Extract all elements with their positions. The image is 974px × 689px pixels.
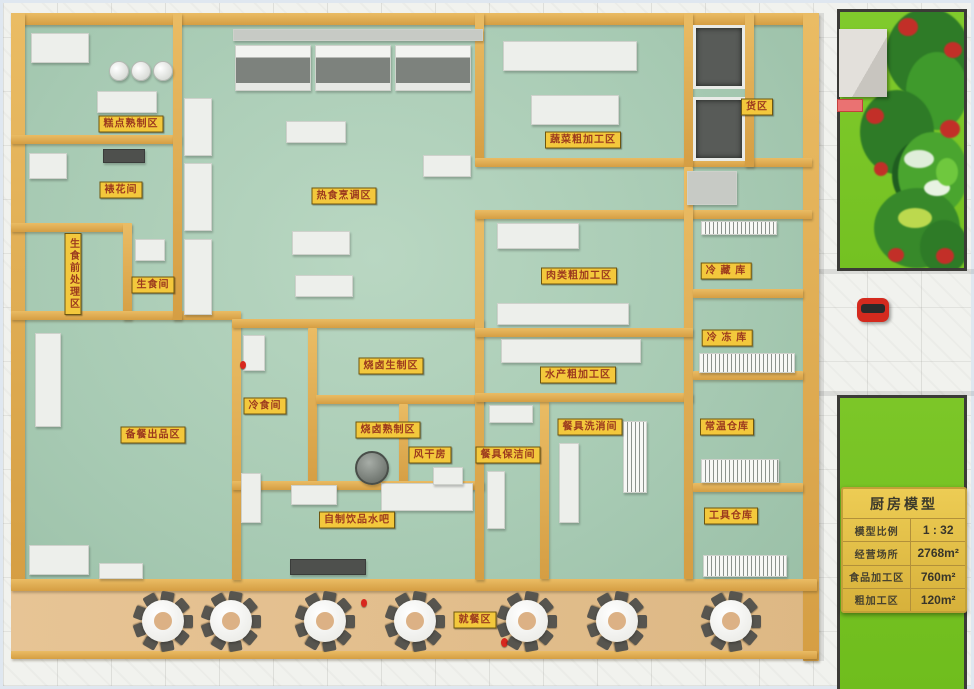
zone-label-dining-zone: 就餐区: [454, 612, 497, 629]
wall-segment: [232, 319, 241, 580]
bush: [936, 158, 958, 186]
building-model: [839, 29, 887, 97]
equipment-block: [489, 405, 533, 423]
wall-segment: [475, 393, 693, 402]
chair: [183, 615, 193, 628]
vent-grill: [703, 555, 787, 577]
wall-segment: [123, 223, 132, 320]
zone-label-tool-warehouse: 工具仓库: [704, 508, 758, 525]
chair: [435, 615, 445, 628]
chair: [345, 615, 355, 628]
equipment-block: [99, 563, 143, 579]
dining-table: [199, 589, 263, 653]
gray: [687, 171, 737, 205]
zone-label-aquatic-rough-processing-zone: 水产粗加工区: [540, 367, 616, 384]
equipment-block: [433, 467, 463, 485]
bush: [936, 248, 954, 264]
wall-segment: [693, 483, 803, 492]
zone-label-freezer-storage: 冷 冻 库: [702, 330, 753, 347]
equipment-block: [381, 483, 473, 511]
dining-table: [383, 589, 447, 653]
equipment-block: [184, 163, 212, 231]
wall-segment: [316, 395, 484, 404]
zone-label-cake-decorating-room: 裱花间: [100, 182, 143, 199]
bush: [940, 120, 960, 138]
wall-segment: [693, 289, 803, 298]
wall-segment: [540, 401, 549, 579]
table-center: [608, 612, 626, 630]
disc: [153, 61, 173, 81]
gray: [233, 29, 483, 41]
info-board: 厨房模型 模型比例 1 : 32 经营场所 2768m² 食品加工区 760m²…: [841, 487, 967, 613]
zone-label-hot-food-cooking-zone: 热食烹调区: [312, 188, 377, 205]
zone-label-meat-rough-processing-zone: 肉类粗加工区: [541, 268, 617, 285]
vent-grill: [701, 221, 777, 235]
wall-shadow: [819, 13, 824, 661]
equipment-block: [97, 91, 157, 113]
zone-label-ambient-warehouse: 常温仓库: [700, 419, 754, 436]
equipment-block: [291, 485, 337, 505]
equipment-block: [497, 303, 629, 325]
wall-segment: [803, 13, 819, 661]
zone-label-tableware-washing-room: 餐具洗消间: [558, 419, 623, 436]
equipment-block: [423, 155, 471, 177]
equipment-block: [135, 239, 165, 261]
range: [315, 45, 391, 91]
bush: [874, 162, 888, 176]
info-board-row-value: 1 : 32: [911, 519, 965, 541]
room: [693, 25, 745, 89]
red-sign: [837, 99, 863, 112]
vent-grill: [623, 421, 647, 493]
marble-backdrop: 糕点熟制区裱花间生食前处理区生食间热食烹调区蔬菜粗加工区货区肉类粗加工区冷 藏 …: [3, 3, 971, 686]
equipment-block: [29, 153, 67, 179]
disc: [131, 61, 151, 81]
wall-segment: [475, 210, 812, 219]
zone-label-cold-storage: 冷 藏 库: [701, 263, 752, 280]
info-board-row: 经营场所 2768m²: [843, 542, 965, 565]
range: [235, 45, 311, 91]
bush: [944, 42, 962, 58]
wall-segment: [684, 167, 693, 579]
chair: [637, 615, 647, 628]
zone-label-raw-food-preprocessing-zone: 生食前处理区: [65, 233, 82, 315]
equipment-block: [241, 473, 261, 523]
equipment-block: [559, 443, 579, 523]
table-center: [154, 612, 172, 630]
wall-segment: [308, 328, 317, 486]
info-board-row-label: 食品加工区: [843, 566, 911, 588]
equipment-block: [487, 471, 505, 529]
chair: [547, 615, 557, 628]
table-center: [518, 612, 536, 630]
kitchen-model-photo: 糕点熟制区裱花间生食前处理区生食间热食烹调区蔬菜粗加工区货区肉类粗加工区冷 藏 …: [0, 0, 974, 689]
bush: [898, 208, 932, 228]
info-board-title: 厨房模型: [843, 489, 965, 519]
zone-label-air-drying-room: 风干房: [409, 447, 452, 464]
wall-segment: [11, 135, 181, 144]
info-board-row-value: 2768m²: [911, 542, 965, 564]
wall-segment: [11, 13, 25, 587]
dining-table: [699, 589, 763, 653]
equipment-block: [501, 339, 641, 363]
equipment-block: [31, 33, 89, 63]
wall-segment: [684, 13, 693, 167]
equipment-block: [295, 275, 353, 297]
info-board-row-label: 经营场所: [843, 542, 911, 564]
info-board-row: 模型比例 1 : 32: [843, 519, 965, 542]
dark: [290, 559, 366, 575]
chair: [251, 615, 261, 628]
wall-segment: [232, 319, 484, 328]
info-board-row: 粗加工区 120m²: [843, 589, 965, 611]
zone-label-pastry-cooked-zone: 糕点熟制区: [99, 116, 164, 133]
wall-segment: [11, 13, 817, 25]
wall-segment: [475, 158, 812, 167]
zone-label-braise-raw-zone: 烧卤生制区: [359, 358, 424, 375]
table-center: [722, 612, 740, 630]
wall-segment: [399, 404, 408, 485]
info-board-row-value: 760m²: [911, 566, 965, 588]
red: [361, 599, 367, 607]
zone-label-tableware-keeping-room: 餐具保洁间: [476, 447, 541, 464]
room: [693, 97, 745, 161]
dining-table: [495, 589, 559, 653]
equipment-block: [184, 239, 212, 315]
info-board-row-label: 粗加工区: [843, 589, 911, 611]
equipment-block: [29, 545, 89, 575]
info-board-row-label: 模型比例: [843, 519, 911, 541]
equipment-block: [292, 231, 350, 255]
zone-label-cold-food-room: 冷食间: [244, 398, 287, 415]
equipment-block: [503, 41, 637, 71]
dining-table: [131, 589, 195, 653]
zone-label-vegetable-rough-processing-zone: 蔬菜粗加工区: [545, 132, 621, 149]
info-board-row-value: 120m²: [911, 589, 965, 611]
zone-label-raw-food-room: 生食间: [132, 277, 175, 294]
zone-label-meal-prep-output-zone: 备餐出品区: [121, 427, 186, 444]
equipment-block: [184, 98, 212, 156]
range: [395, 45, 471, 91]
bush: [866, 108, 884, 124]
bush: [904, 150, 934, 168]
dining-table: [585, 589, 649, 653]
pot: [355, 451, 389, 485]
table-center: [316, 612, 334, 630]
equipment-block: [531, 95, 619, 125]
wall-segment: [11, 223, 131, 232]
equipment-block: [243, 335, 265, 371]
table-center: [222, 612, 240, 630]
dining-table: [293, 589, 357, 653]
equipment-block: [497, 223, 579, 249]
info-board-row: 食品加工区 760m²: [843, 566, 965, 589]
table-center: [406, 612, 424, 630]
wall-segment: [173, 13, 182, 320]
equipment-block: [286, 121, 346, 143]
wall-segment: [745, 13, 754, 167]
zone-label-house-made-drink-bar: 自制饮品水吧: [319, 512, 395, 529]
vent-grill: [699, 353, 795, 373]
bush: [888, 248, 904, 262]
zone-label-braise-cooked-zone: 烧卤熟制区: [356, 422, 421, 439]
disc: [109, 61, 129, 81]
dark: [103, 149, 145, 163]
bush: [898, 18, 918, 36]
red-car: [857, 298, 889, 322]
wall-segment: [475, 328, 693, 337]
zone-label-goods-zone: 货区: [741, 99, 773, 116]
chair: [751, 615, 761, 628]
red: [240, 361, 246, 369]
vent-grill: [701, 459, 779, 483]
equipment-block: [35, 333, 61, 427]
